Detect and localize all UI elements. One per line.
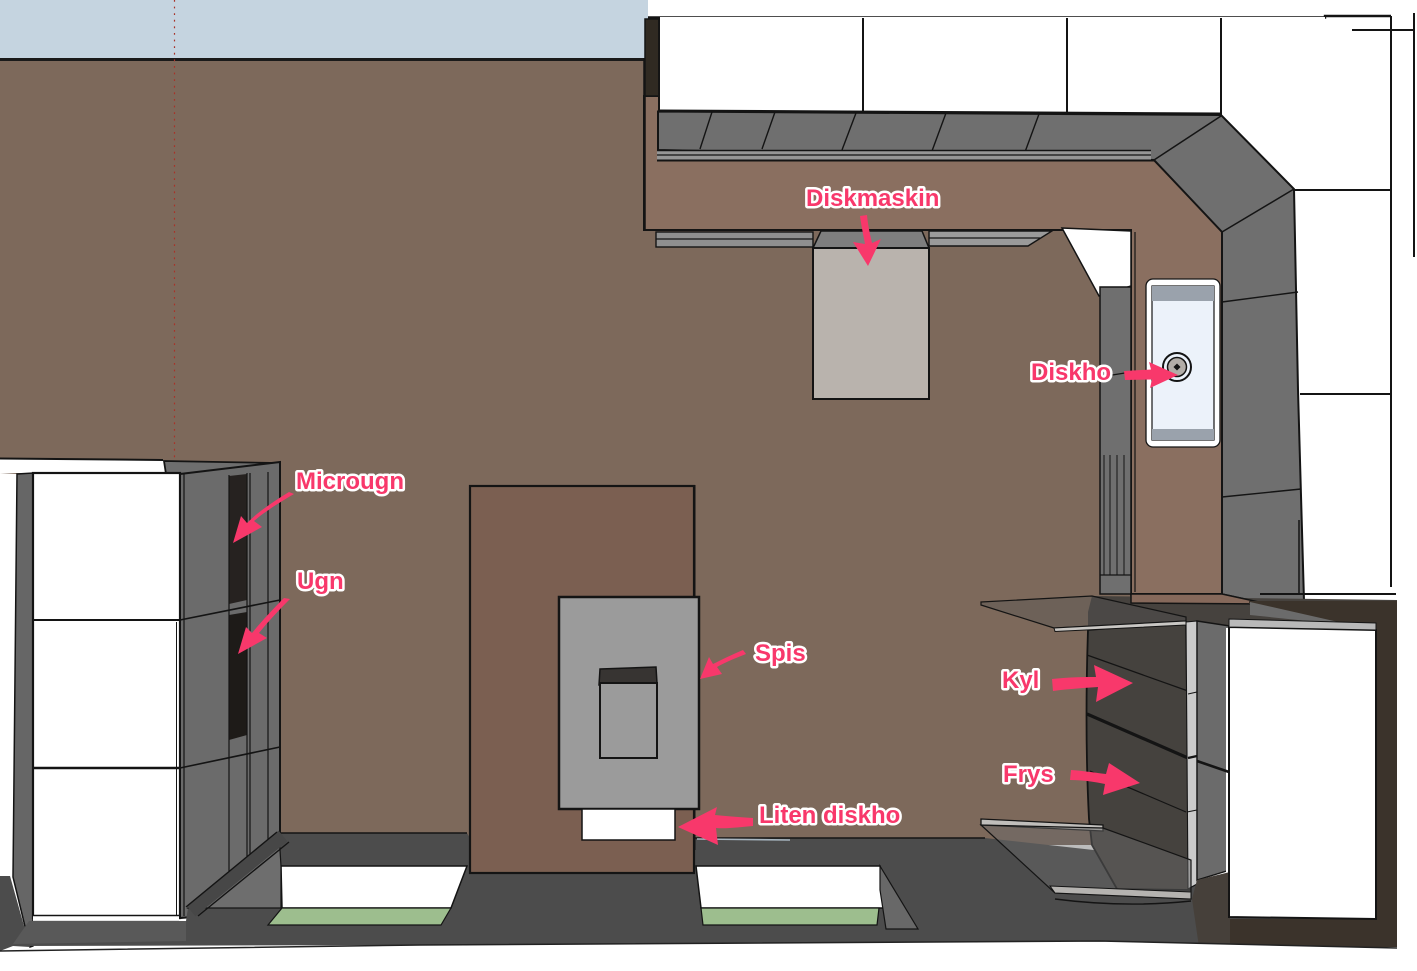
svg-text:Liten diskho: Liten diskho (759, 802, 900, 829)
svg-text:Microugn: Microugn (296, 468, 404, 495)
svg-text:Diskho: Diskho (1031, 359, 1111, 386)
svg-text:Kyl: Kyl (1002, 667, 1039, 694)
svg-text:Diskmaskin: Diskmaskin (806, 185, 939, 212)
svg-text:Ugn: Ugn (297, 568, 344, 595)
svg-text:Spis: Spis (755, 640, 806, 667)
svg-text:Frys: Frys (1003, 761, 1054, 788)
